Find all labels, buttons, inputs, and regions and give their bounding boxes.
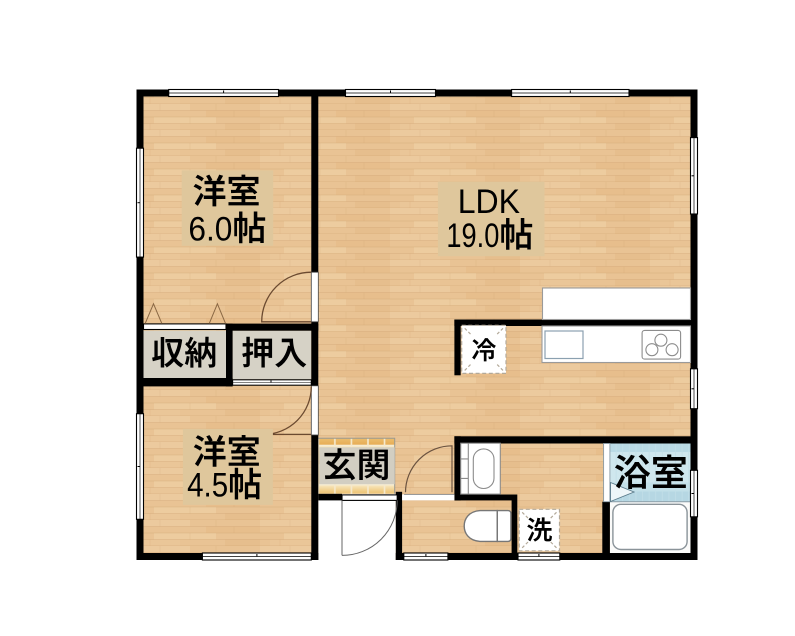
svg-text:19.0: 19.0: [446, 217, 499, 255]
svg-text:6.0: 6.0: [188, 210, 232, 248]
svg-text:LDK: LDK: [458, 183, 521, 221]
svg-text:4.5: 4.5: [187, 467, 228, 505]
